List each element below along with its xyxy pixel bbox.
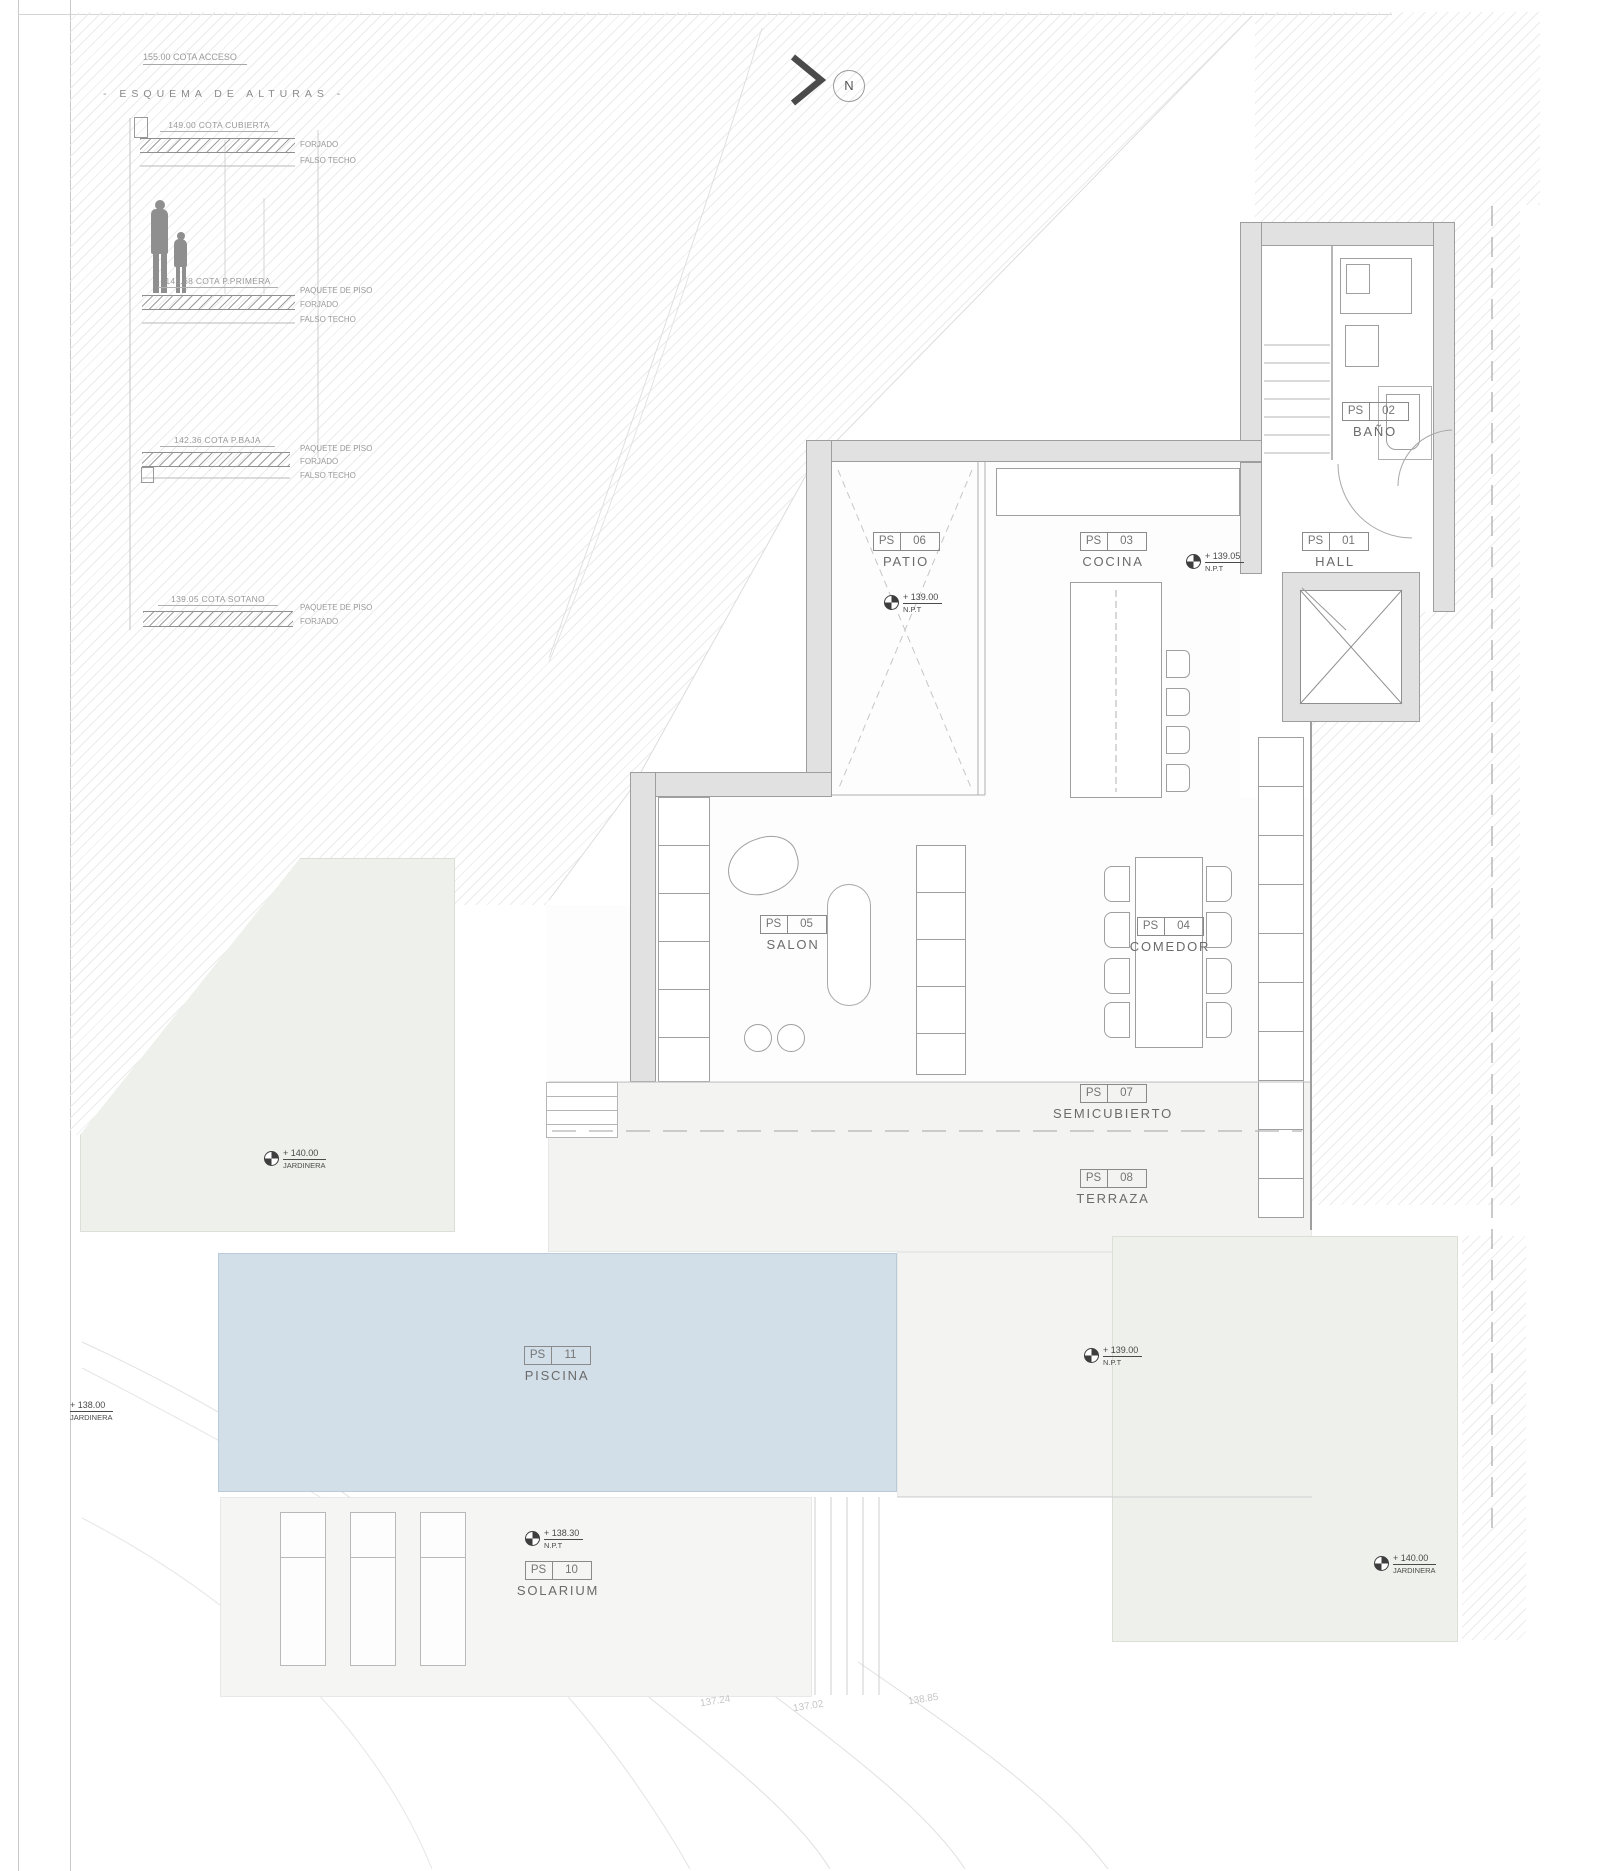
room-label-semicubierto: PS07 SEMICUBIERTO [1043,1083,1183,1121]
room-tag: PS03 [1080,532,1147,551]
room-name: TERRAZA [1043,1191,1183,1206]
level-marker-solarium: + 138.30N.P.T [525,1528,583,1550]
level-marker-icon [1374,1556,1389,1571]
room-name: SEMICUBIERTO [1043,1106,1183,1121]
room-tag-prefix: PS [874,533,901,550]
level-marker-patio: + 139.00N.P.T [884,592,942,614]
room-label-piscina: PS11 PISCINA [487,1345,627,1383]
north-label: N [844,78,853,93]
room-label-terraza: PS08 TERRAZA [1043,1168,1183,1206]
room-tag-prefix: PS [761,916,788,933]
level-marker-icon [1084,1348,1099,1363]
room-tag-number: 07 [1108,1085,1146,1102]
room-name: COMEDOR [1100,939,1240,954]
level-value: + 139.00 [1103,1345,1142,1357]
room-tag: PS08 [1080,1169,1147,1188]
room-tag-number: 02 [1370,403,1408,420]
level-datum: JARDINERA [70,1413,113,1422]
room-tag-prefix: PS [1343,403,1370,420]
room-label-comedor: PS04 COMEDOR [1100,916,1240,954]
room-name: SALON [723,937,863,952]
level-datum: N.P.T [1205,564,1244,573]
level-marker-planter-right: + 140.00JARDINERA [1374,1553,1436,1575]
room-tag: PS05 [760,915,827,934]
level-datum: JARDINERA [283,1161,326,1170]
room-tag-prefix: PS [1081,1170,1108,1187]
room-label-cocina: PS03 COCINA [1043,531,1183,569]
room-tag-prefix: PS [526,1562,553,1579]
room-tag-prefix: PS [1081,533,1108,550]
room-tag-number: 11 [552,1347,590,1364]
level-marker-hall: + 139.05N.P.T [1186,551,1244,573]
level-marker-icon [525,1531,540,1546]
room-tag-number: 05 [788,916,826,933]
level-datum: N.P.T [544,1541,583,1550]
level-value: + 139.05 [1205,551,1244,563]
architectural-plan-sheet: 155.00 COTA ACCESO - ESQUEMA DE ALTURAS … [0,0,1600,1871]
level-marker-icon [1186,554,1201,569]
room-tag-number: 08 [1108,1170,1146,1187]
room-tag: PS10 [525,1561,592,1580]
room-label-patio: PS06 PATIO [836,531,976,569]
room-name: BAÑO [1305,424,1445,439]
level-value: + 140.00 [1393,1553,1436,1565]
room-tag: PS11 [524,1346,591,1365]
room-tag: PS04 [1137,917,1204,936]
room-tag-prefix: PS [1138,918,1165,935]
room-tag: PS07 [1080,1084,1147,1103]
level-datum: N.P.T [903,605,942,614]
room-name: COCINA [1043,554,1183,569]
room-label-salon: PS05 SALON [723,914,863,952]
level-datum: JARDINERA [1393,1566,1436,1575]
room-name: HALL [1265,554,1405,569]
room-name: PISCINA [487,1368,627,1383]
level-marker-planter-left: + 140.00JARDINERA [264,1148,326,1170]
room-label-bano: PS02 BAÑO [1305,401,1445,439]
room-tag-number: 10 [553,1562,591,1579]
room-tag-prefix: PS [525,1347,552,1364]
room-tag-number: 03 [1108,533,1146,550]
level-datum: N.P.T [1103,1358,1142,1367]
room-tag: PS02 [1342,402,1409,421]
room-tag-number: 06 [901,533,939,550]
room-name: SOLARIUM [488,1583,628,1598]
room-tag-number: 04 [1165,918,1203,935]
level-value: + 139.00 [903,592,942,604]
level-value: + 138.30 [544,1528,583,1540]
room-name: PATIO [836,554,976,569]
room-tag-number: 01 [1330,533,1368,550]
level-value: + 140.00 [283,1148,326,1160]
room-tag-prefix: PS [1081,1085,1108,1102]
level-marker-icon [884,595,899,610]
level-value: + 138.00 [70,1400,113,1412]
room-label-hall: PS01 HALL [1265,531,1405,569]
level-marker-icon [264,1151,279,1166]
north-arrow: N [833,70,865,102]
room-tag: PS01 [1302,532,1369,551]
room-label-solarium: PS10 SOLARIUM [488,1560,628,1598]
level-marker-planter-edge: + 138.00JARDINERA [70,1400,113,1422]
level-marker-terraza: + 139.00N.P.T [1084,1345,1142,1367]
room-tag: PS06 [873,532,940,551]
room-tag-prefix: PS [1303,533,1330,550]
